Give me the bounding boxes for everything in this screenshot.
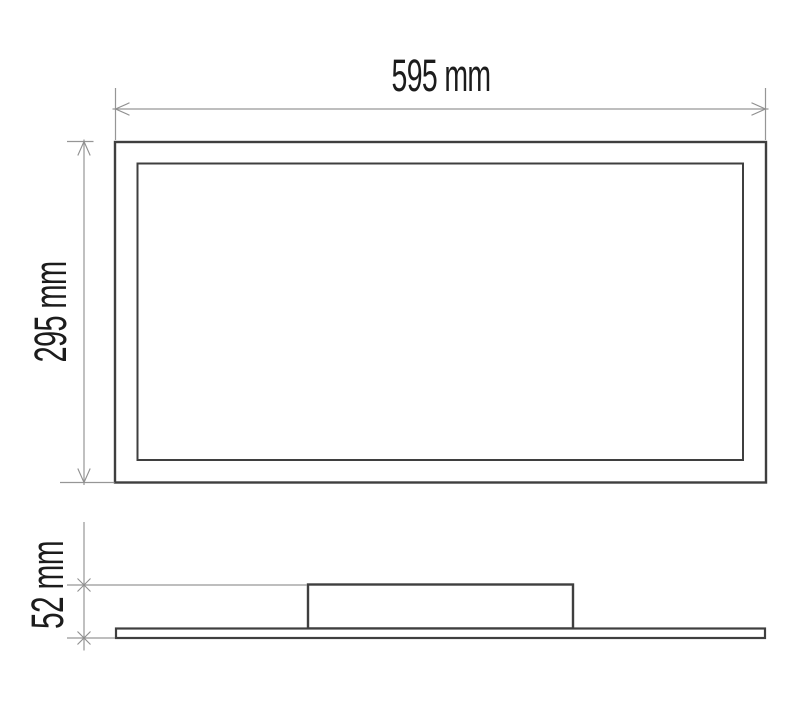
panel-side-view <box>116 585 765 639</box>
height-dimension: 295 mm <box>25 140 115 486</box>
panel-plate-profile <box>116 629 765 639</box>
dimension-drawing-canvas: 595 mm 295 mm <box>0 0 800 722</box>
thickness-dimension-label: 52 mm <box>22 541 73 629</box>
height-dimension-label: 295 mm <box>25 262 76 363</box>
panel-top-view <box>115 142 766 483</box>
driver-housing-profile <box>308 585 573 629</box>
panel-inner-frame <box>138 164 744 461</box>
width-dimension: 595 mm <box>113 50 769 140</box>
width-dimension-label: 595 mm <box>392 50 491 101</box>
technical-drawing: 595 mm 295 mm <box>0 0 800 722</box>
